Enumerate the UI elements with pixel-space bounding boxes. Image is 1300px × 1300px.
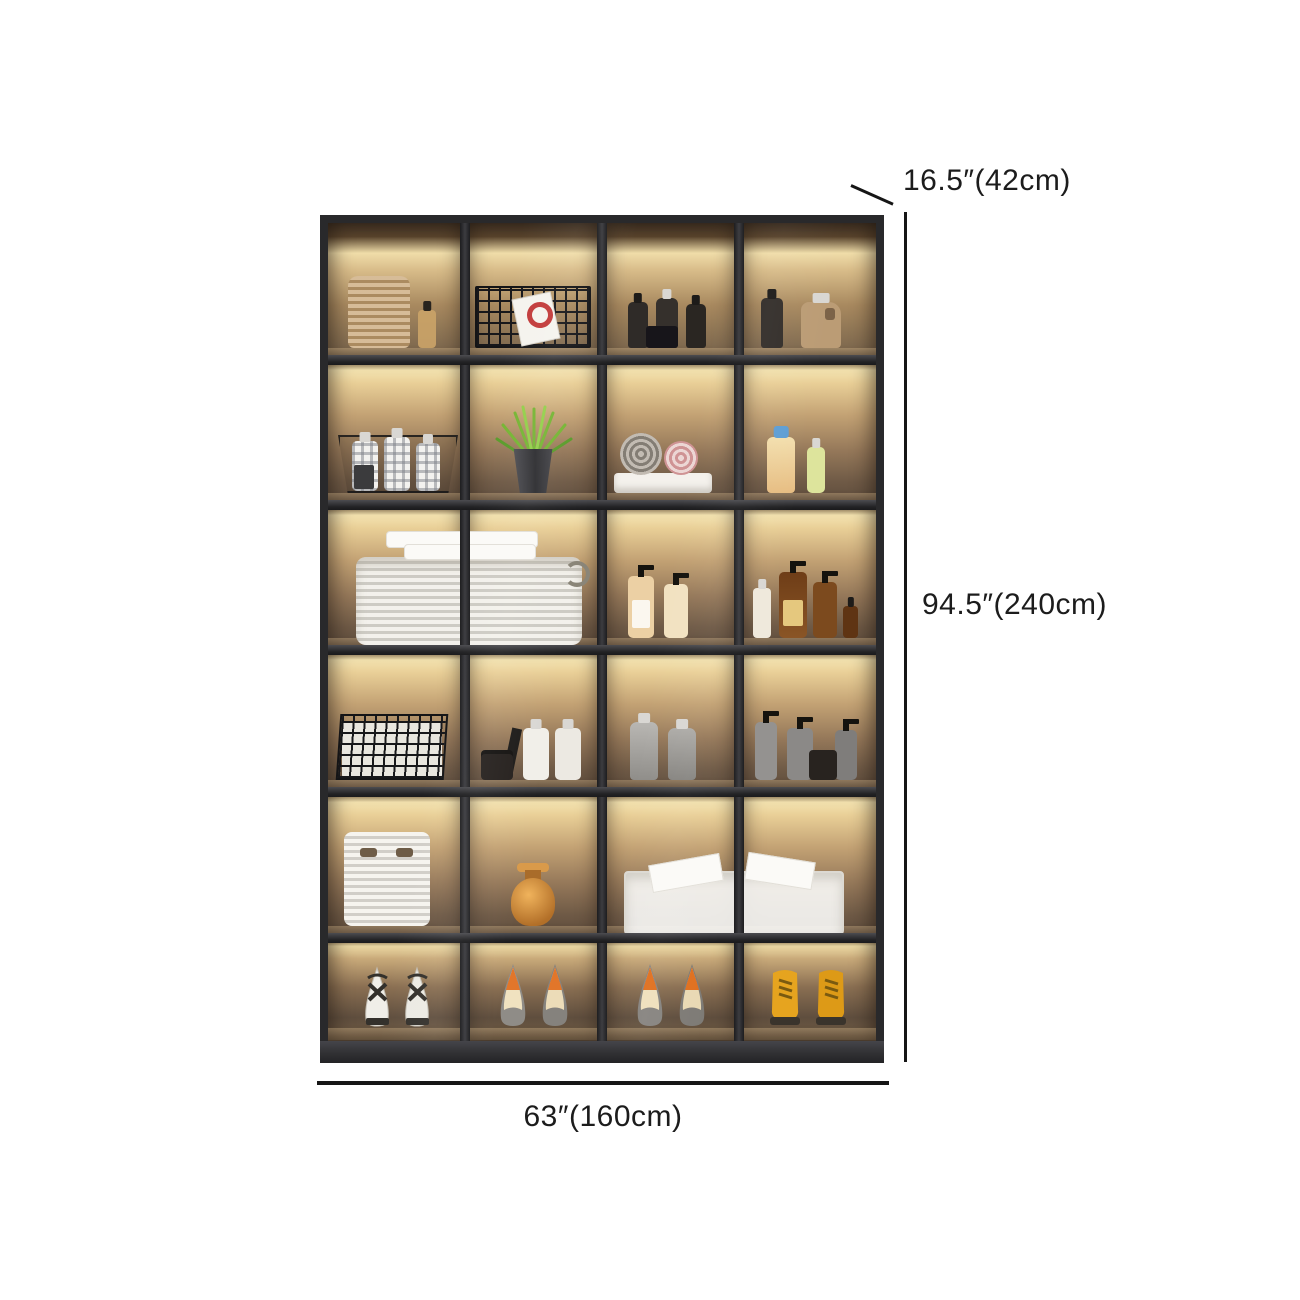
compartment-r4c3	[602, 650, 739, 792]
compartment-r1c4	[739, 223, 876, 360]
amber-pump-bottle	[813, 582, 837, 638]
white-bottle	[753, 588, 771, 638]
tan-jug	[801, 302, 841, 348]
wire-basket	[336, 714, 449, 780]
dark-bottle	[686, 304, 706, 348]
white-storage-bag	[344, 832, 430, 926]
black-jar	[646, 326, 678, 348]
door-frame-mullion	[597, 223, 607, 1041]
metal-pot	[511, 449, 555, 493]
compartment-r6c2	[465, 938, 602, 1040]
pump-left	[496, 962, 530, 1028]
sandal-left	[361, 966, 393, 1028]
bag-handle-slot	[360, 848, 377, 857]
door-frame-mullion	[460, 223, 470, 1041]
compartment-r1c2	[465, 223, 602, 360]
compartment-r4c2	[465, 650, 602, 792]
compartment-r6c4	[739, 938, 876, 1040]
gray-orange-pumps	[633, 962, 709, 1028]
bag-handle-slot	[396, 848, 413, 857]
basket-handle	[564, 561, 590, 587]
gray-orange-pumps	[496, 962, 572, 1028]
height-dimension-label: 94.5″(240cm)	[922, 588, 1107, 622]
rolled-towel-gray	[620, 433, 662, 475]
beige-pump-bottle	[664, 584, 688, 638]
pump-right	[538, 962, 572, 1028]
gray-detergent-bottle	[630, 722, 658, 780]
towel-stack	[404, 544, 536, 560]
dark-jar	[481, 754, 513, 780]
gray-pump-bottle	[835, 730, 857, 780]
white-canister	[523, 728, 549, 780]
yellow-ankle-boots	[766, 966, 850, 1028]
vase-body	[511, 878, 555, 926]
plaid-bottle	[384, 437, 410, 491]
shelf-divider	[328, 355, 876, 365]
compartment-r3c3	[602, 505, 739, 650]
woven-basket-stack	[348, 276, 410, 348]
glass-door-grid	[328, 223, 876, 1041]
green-bottle	[807, 447, 825, 493]
glass-bottle	[418, 310, 436, 348]
display-cabinet	[320, 215, 884, 1063]
dark-jar	[809, 750, 837, 780]
compartment-r3c4	[739, 505, 876, 650]
shelf-divider	[328, 500, 876, 510]
door-frame-mullion	[734, 223, 744, 1041]
folded-towel	[614, 473, 712, 493]
compartment-r4c4	[739, 650, 876, 792]
compartment-r6c1	[328, 938, 465, 1040]
compartment-r2c4	[739, 360, 876, 505]
boot-left	[766, 966, 804, 1028]
shelf-divider	[328, 787, 876, 797]
cabinet-base	[320, 1041, 884, 1063]
gray-detergent-bottle	[668, 728, 696, 780]
bottle-dark-label	[354, 465, 374, 489]
small-amber-bottle	[843, 606, 858, 638]
sandal-right	[401, 966, 433, 1028]
cream-lotion-bottle	[767, 437, 795, 493]
boot-right	[812, 966, 850, 1028]
width-dimension-label: 63″(160cm)	[317, 1100, 889, 1134]
compartment-r1c3	[602, 223, 739, 360]
compartment-r2c1	[328, 360, 465, 505]
white-heeled-sandals	[361, 966, 433, 1028]
jug-handle-hole	[825, 308, 835, 320]
pump-right	[675, 962, 709, 1028]
rolled-towel-pink	[664, 441, 698, 475]
compartment-r5c2	[465, 792, 602, 938]
pump-left	[633, 962, 667, 1028]
compartment-r4c1	[328, 650, 465, 792]
compartment-r5c1	[328, 792, 465, 938]
compartment-r6c3	[602, 938, 739, 1040]
compartment-r2c3	[602, 360, 739, 505]
shelf-divider	[328, 645, 876, 655]
shelf-divider	[328, 933, 876, 943]
depth-dimension-label: 16.5″(42cm)	[903, 164, 1071, 198]
dark-bottle	[628, 302, 648, 348]
width-dimension-line	[317, 1081, 889, 1085]
gray-pump-bottle	[755, 722, 777, 780]
compartment-r1c1	[328, 223, 465, 360]
bottle-label	[632, 600, 650, 628]
compartment-r2c2	[465, 360, 602, 505]
plaid-bottle	[416, 443, 440, 491]
depth-dimension-tick	[850, 184, 893, 205]
white-canister	[555, 728, 581, 780]
product-dimension-diagram: 16.5″(42cm) 94.5″(240cm) 63″(160cm)	[0, 0, 1300, 1300]
height-dimension-line	[904, 212, 907, 1062]
amber-label	[783, 600, 803, 626]
dark-bottle	[761, 298, 783, 348]
